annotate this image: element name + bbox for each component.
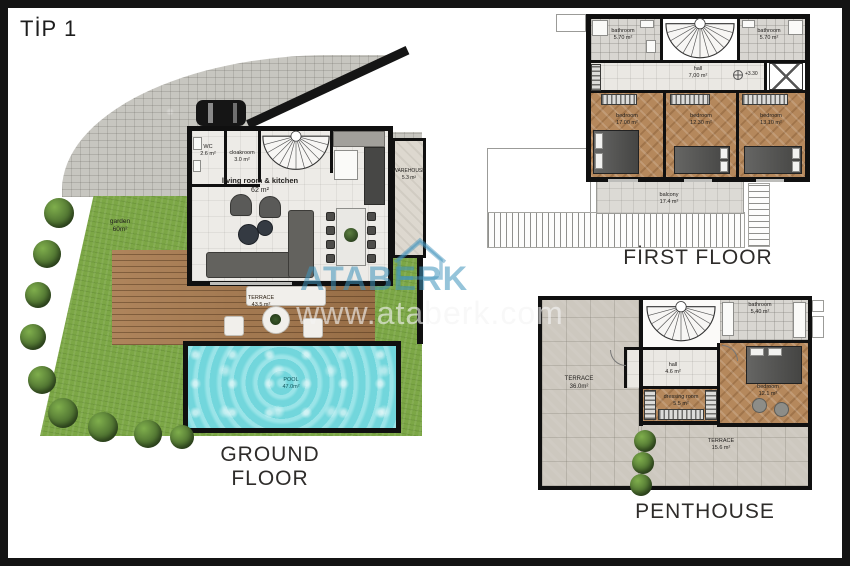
pillow — [595, 153, 603, 169]
pouf — [752, 398, 767, 413]
ac-unit — [812, 316, 824, 338]
car-windshield — [208, 103, 213, 123]
bush — [134, 420, 162, 448]
bathtub — [793, 302, 806, 338]
dining-chair — [367, 240, 376, 249]
wardrobe — [658, 409, 704, 420]
dining-chair — [326, 240, 335, 249]
bush — [88, 412, 118, 442]
p-wall-bath-bottom — [720, 340, 808, 343]
bush — [630, 474, 652, 496]
plan-type-title: TİP 1 — [20, 16, 77, 42]
pillow — [792, 148, 800, 159]
room-label-bedroom1: bedroom 17.00 m² — [604, 113, 650, 127]
pillow — [595, 133, 603, 149]
p-wall-bed-bottom — [717, 423, 808, 427]
p-wall-bed-left — [717, 343, 720, 425]
p-wall-dress-top — [643, 386, 720, 389]
pouf — [774, 402, 789, 417]
bush — [44, 198, 74, 228]
room-label-cloakroom: cloakroom 3.0 m² — [226, 150, 258, 164]
p-wall-v-main — [639, 300, 643, 426]
sink — [640, 20, 654, 28]
room-label-pool: POOL 47.0m² — [268, 377, 314, 391]
car-rear-window — [233, 103, 237, 123]
outdoor-plant — [270, 314, 281, 325]
bush — [28, 366, 56, 394]
dining-chair — [367, 212, 376, 221]
watermark-brand: ATABERK — [300, 260, 460, 299]
toilet — [646, 40, 656, 53]
dining-chair — [326, 226, 335, 235]
bush — [48, 398, 78, 428]
first-spiral-stair — [663, 17, 737, 63]
bush — [20, 324, 46, 350]
dining-chair — [326, 212, 335, 221]
pillow — [768, 348, 782, 356]
wall-v4 — [736, 92, 739, 177]
bush — [25, 282, 51, 308]
sofa-bottom — [206, 252, 298, 278]
pillow — [720, 161, 728, 172]
window — [756, 179, 784, 182]
elevation-text: +3.30 — [745, 71, 767, 78]
armchair — [259, 196, 281, 218]
room-label-bedroom3: bedroom 13.10 m² — [748, 113, 794, 127]
room-label-dressing: dressing room 5.5 m² — [654, 394, 708, 408]
pillow — [750, 348, 764, 356]
p-wall-hall-top — [627, 347, 720, 350]
wardrobe — [591, 64, 601, 91]
floor-plan-sheet: TİP 1 — [0, 0, 850, 566]
coffee-table — [238, 224, 259, 245]
room-label-bathroom-right: bathroom 5.70 m² — [746, 28, 792, 42]
bush — [634, 430, 656, 452]
ground-spiral-stair — [260, 129, 332, 175]
wardrobe — [742, 94, 788, 105]
shaft-box — [769, 63, 803, 90]
wall-v2 — [737, 19, 740, 62]
room-label-hall: hall 7,00 m² — [680, 66, 716, 80]
penthouse-title: PENTHOUSE — [607, 500, 803, 524]
pillow — [720, 148, 728, 159]
window-ledge — [556, 14, 586, 32]
room-label-penthouse-bath: bathroom 5,40 m² — [738, 302, 782, 316]
sink — [742, 20, 755, 28]
watermark-url: www.ataberk.com — [290, 295, 570, 332]
kitchen-island — [334, 150, 358, 180]
wardrobe — [601, 94, 637, 105]
wc-toilet — [193, 160, 201, 172]
ground-floor-title: GROUND FLOOR — [180, 443, 360, 491]
room-label-penthouse-hall: hall 4.6 m² — [656, 362, 690, 376]
bush — [33, 240, 61, 268]
shower — [722, 302, 734, 336]
wardrobe — [670, 94, 710, 105]
room-label-terrace-lower: TERRACE 15.6 m² — [698, 438, 744, 452]
p-wall-dress-bottom — [639, 421, 720, 425]
car-icon — [196, 100, 246, 126]
window — [608, 179, 638, 182]
table-plant — [344, 228, 358, 242]
kitchen-counter-side — [364, 147, 385, 205]
dining-chair — [367, 226, 376, 235]
room-label-wc: WC 2.6 m² — [192, 144, 224, 158]
room-label-terrace-main: TERRACE 36.0m² — [555, 376, 603, 392]
outdoor-stool — [224, 316, 244, 336]
room-label-living: living room & kitchen 62 m² — [212, 176, 308, 195]
penthouse-spiral-stair — [644, 298, 718, 348]
room-label-bedroom2: bedroom 12.30 m² — [678, 113, 724, 127]
wall-v3 — [663, 92, 666, 177]
sliding-door — [210, 282, 292, 285]
first-floor-title: FİRST FLOOR — [600, 246, 796, 270]
room-label-balcony: balcony 17.4 m² — [646, 192, 692, 206]
pillow — [792, 161, 800, 172]
side-slats — [748, 183, 770, 247]
armchair — [230, 194, 252, 216]
bush — [632, 452, 654, 474]
room-label-penthouse-bedroom: bedroom 12.1 m² — [746, 384, 790, 398]
room-label-garden: garden 60m² — [98, 218, 142, 235]
room-label-terrace: TERRACE 43.5 m² — [238, 295, 284, 309]
wall-h2 — [591, 90, 805, 93]
ac-unit — [812, 300, 824, 312]
coffee-table — [257, 220, 273, 236]
room-label-bathroom-left: bathroom 5.70 m² — [600, 28, 646, 42]
elevation-marker — [733, 70, 743, 80]
pergola-slats — [487, 212, 745, 248]
kitchen-counter-top — [333, 131, 385, 147]
penthouse-terrace-lower — [641, 425, 808, 486]
room-label-warehouse: WAREHOUSE 5.3 m² — [393, 168, 425, 181]
window — [684, 179, 712, 182]
